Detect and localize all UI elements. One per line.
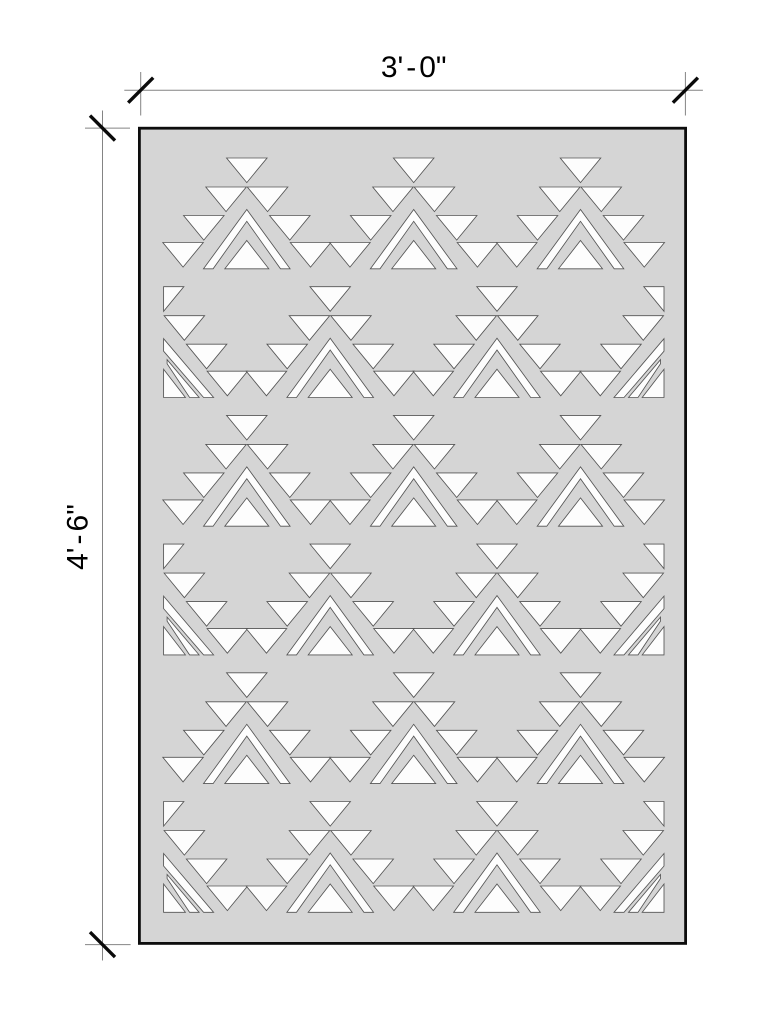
svg-text:4'-6": 4'-6" [62,504,95,570]
svg-text:3'-0": 3'-0" [381,51,447,84]
